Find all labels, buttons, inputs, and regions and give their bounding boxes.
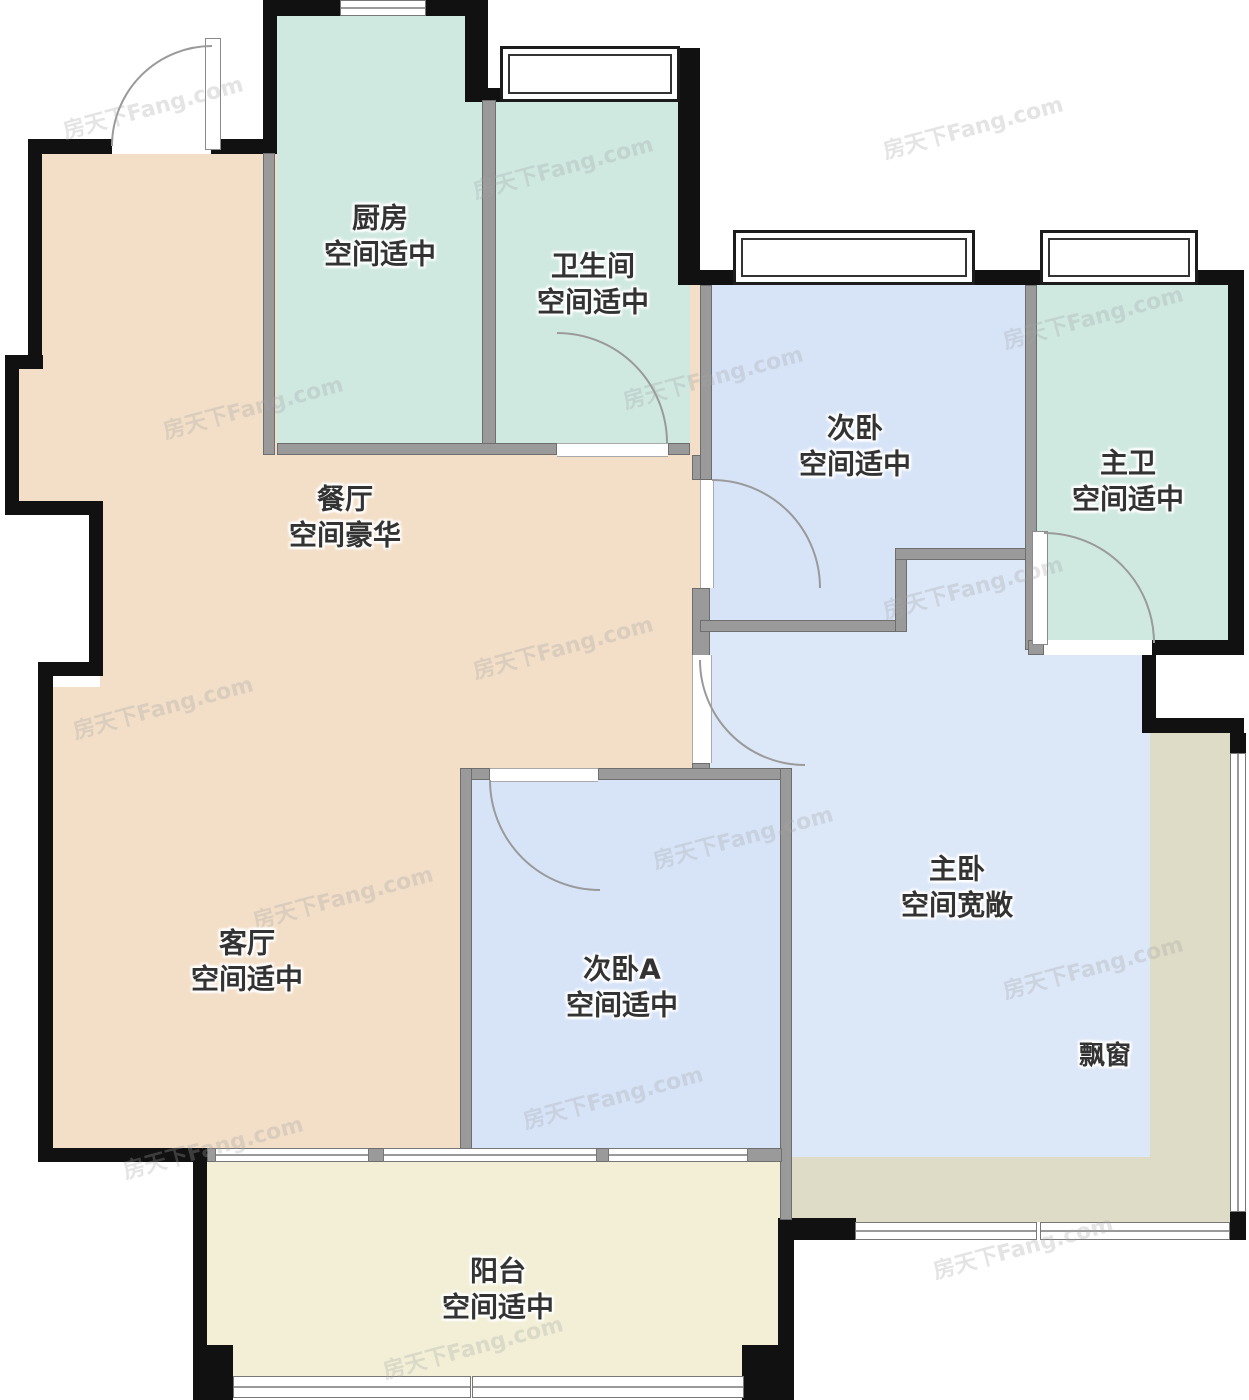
room-label-bedroom2: 次卧 空间适中 (799, 411, 911, 484)
room-desc: 空间适中 (1072, 482, 1184, 518)
door-opening (490, 768, 598, 782)
door-arc (112, 46, 212, 146)
wall-segment (89, 501, 103, 676)
wall-segment (193, 1345, 233, 1400)
room-label-dining: 餐厅 空间豪华 (289, 482, 401, 555)
wall-segment (598, 768, 790, 780)
wall-segment (38, 662, 53, 1162)
room-label-bathroom: 卫生间 空间适中 (537, 249, 649, 322)
room-name: 阳台 (442, 1254, 554, 1290)
wall-segment (973, 270, 1042, 285)
room-fill-corridor (905, 548, 1030, 632)
bay-window-label: 飘窗 (1079, 1040, 1131, 1074)
bay-window-fill (1150, 733, 1232, 1213)
window (1040, 1222, 1230, 1240)
wall-segment (28, 139, 42, 369)
wall-segment (690, 270, 736, 285)
room-name: 卫生间 (537, 249, 649, 285)
room-label-kitchen: 厨房 空间适中 (324, 201, 436, 274)
room-desc: 空间宽敞 (901, 888, 1013, 924)
window (500, 46, 680, 102)
door-opening (557, 443, 668, 457)
wall-segment (700, 285, 712, 480)
room-name: 客厅 (191, 926, 303, 962)
wall-segment (263, 0, 340, 16)
window (383, 1148, 597, 1162)
wall-segment (424, 0, 488, 16)
window (215, 1148, 369, 1162)
wall-segment (263, 153, 275, 455)
window (608, 1148, 748, 1162)
wall-segment (742, 1345, 794, 1400)
room-desc: 空间适中 (191, 962, 303, 998)
wall-segment (778, 1218, 856, 1240)
room-label-living: 客厅 空间适中 (191, 926, 303, 999)
room-name: 主卫 (1072, 446, 1184, 482)
bay-window-fill (792, 1157, 1232, 1222)
wall-segment (482, 100, 496, 455)
watermark: 房天下Fang.com (879, 87, 1066, 166)
wall-segment (38, 1148, 210, 1162)
wall-segment (460, 768, 472, 1162)
wall-segment (895, 548, 907, 632)
room-desc: 空间适中 (566, 988, 678, 1024)
room-label-balcony: 阳台 空间适中 (442, 1254, 554, 1327)
wall-segment (895, 548, 1037, 560)
wall-segment (668, 443, 690, 455)
room-desc: 空间适中 (442, 1290, 554, 1326)
room-desc: 空间适中 (537, 285, 649, 321)
wall-segment (263, 0, 277, 153)
window (1230, 753, 1246, 1212)
door-leaf (205, 38, 221, 150)
window (1040, 230, 1198, 285)
window (855, 1222, 1037, 1240)
room-name: 主卧 (901, 852, 1013, 888)
wall-segment (277, 443, 557, 455)
door-opening (1044, 640, 1152, 655)
wall-segment (1230, 1210, 1246, 1240)
window (340, 0, 426, 16)
room-desc: 空间适中 (799, 447, 911, 483)
floorplan-canvas: 房天下Fang.com 房天下Fang.com 房天下Fang.com 房天下F… (0, 0, 1249, 1400)
wall-segment (678, 48, 700, 285)
room-label-master: 主卧 空间宽敞 (901, 852, 1013, 925)
window (233, 1376, 471, 1398)
door-opening (112, 139, 211, 154)
wall-segment (465, 16, 488, 102)
wall-segment (1142, 718, 1244, 733)
room-fill-dining (5, 360, 100, 515)
bay-window-text: 飘窗 (1079, 1040, 1131, 1074)
door-opening (692, 655, 712, 763)
room-desc: 空间豪华 (289, 518, 401, 554)
room-name: 次卧A (566, 952, 678, 988)
window (472, 1376, 744, 1398)
wall-segment (5, 355, 19, 515)
window (733, 230, 975, 285)
wall-segment (700, 620, 907, 632)
room-name: 厨房 (324, 201, 436, 237)
room-desc: 空间适中 (324, 237, 436, 273)
door-opening (700, 480, 714, 588)
room-name: 次卧 (799, 411, 911, 447)
wall-segment (1228, 270, 1244, 642)
room-name: 餐厅 (289, 482, 401, 518)
door-leaf (1032, 531, 1048, 645)
wall-segment (1152, 640, 1244, 655)
room-label-masterbath: 主卫 空间适中 (1072, 446, 1184, 519)
room-label-bedroom2a: 次卧A 空间适中 (566, 952, 678, 1025)
